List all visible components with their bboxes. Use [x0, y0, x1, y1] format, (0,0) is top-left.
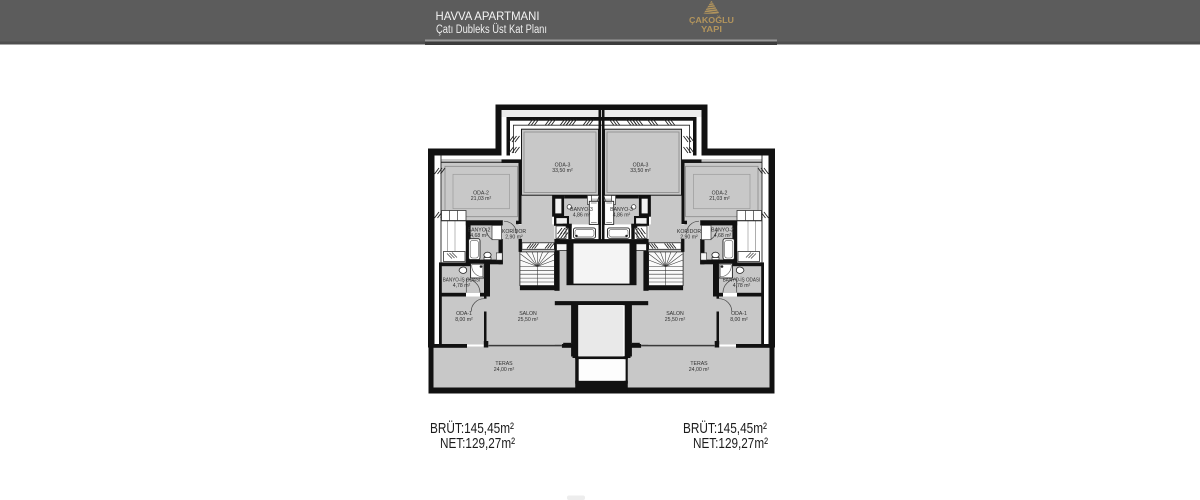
svg-text:Çatı Dubleks Üst Kat Planı: Çatı Dubleks Üst Kat Planı	[436, 24, 547, 36]
svg-text:NET:129,27m²: NET:129,27m²	[440, 435, 515, 452]
svg-text:8,00 m²: 8,00 m²	[730, 317, 748, 323]
svg-text:4,86 m²: 4,86 m²	[573, 213, 591, 219]
svg-text:NET:129,27m²: NET:129,27m²	[693, 435, 768, 452]
svg-text:HAVVA APARTMANI: HAVVA APARTMANI	[436, 9, 540, 23]
svg-text:4,68 m²: 4,68 m²	[470, 233, 488, 239]
svg-text:4,78 m²: 4,78 m²	[733, 283, 751, 289]
svg-text:8,00 m²: 8,00 m²	[455, 317, 473, 323]
svg-text:2,90 m²: 2,90 m²	[505, 235, 523, 241]
svg-text:33,50 m²: 33,50 m²	[552, 168, 573, 174]
svg-text:4,68 m²: 4,68 m²	[714, 233, 732, 239]
svg-text:24,00 m²: 24,00 m²	[494, 367, 515, 373]
svg-text:25,50 m²: 25,50 m²	[665, 317, 686, 323]
svg-text:33,50 m²: 33,50 m²	[630, 168, 651, 174]
svg-text:25,50 m²: 25,50 m²	[518, 317, 539, 323]
svg-text:4,78 m²: 4,78 m²	[453, 283, 471, 289]
svg-text:2,90 m²: 2,90 m²	[680, 235, 698, 241]
svg-text:24,00 m²: 24,00 m²	[689, 367, 710, 373]
svg-text:YAPI: YAPI	[701, 24, 722, 34]
svg-text:4,86 m²: 4,86 m²	[613, 213, 631, 219]
svg-text:21,03 m²: 21,03 m²	[709, 196, 730, 202]
svg-text:21,03 m²: 21,03 m²	[471, 196, 492, 202]
